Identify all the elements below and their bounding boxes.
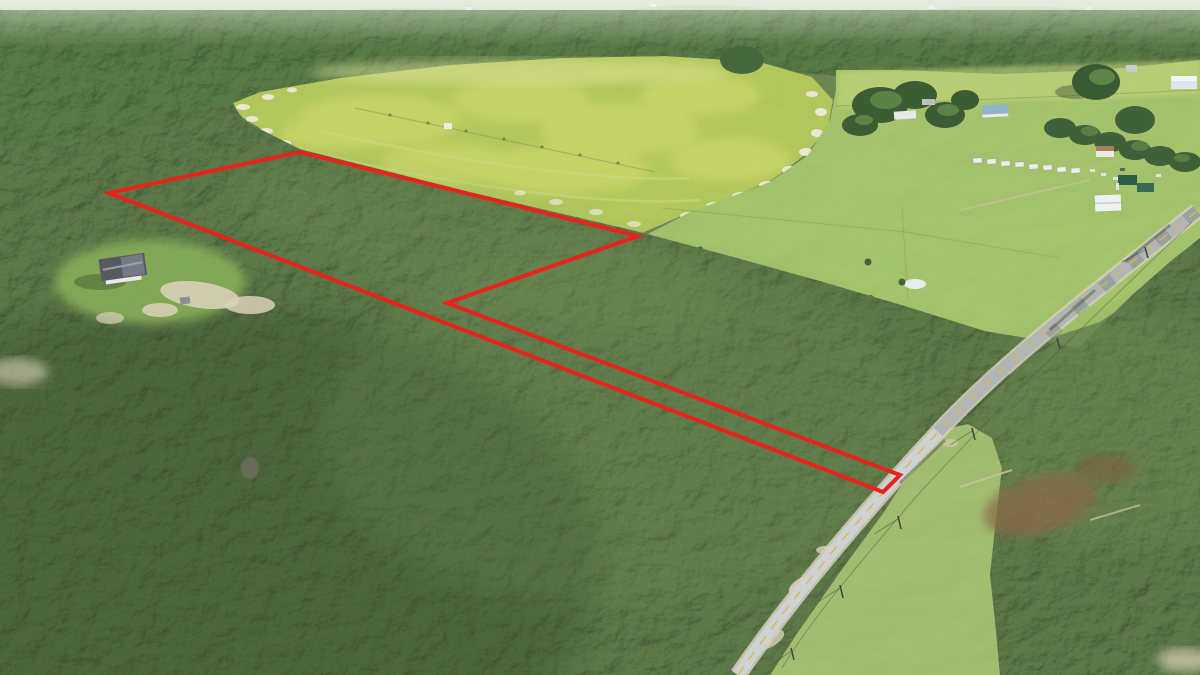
dead-tree-snag <box>241 457 259 479</box>
atmosphere-haze <box>0 0 1200 46</box>
small-outbuilding <box>922 99 935 105</box>
garden-shed <box>180 296 191 304</box>
small-shed <box>1126 65 1137 72</box>
aerial-photo-svg <box>0 0 1200 675</box>
warehouse <box>1171 76 1197 89</box>
aerial-photo <box>0 0 1200 675</box>
pasture-rv <box>904 279 926 289</box>
white-trailer <box>894 110 917 120</box>
farmhouse <box>1096 146 1114 157</box>
metal-barn <box>1095 195 1122 212</box>
pivot-pump-house <box>444 123 452 129</box>
field-edge-tree <box>720 46 764 74</box>
field-light-edge <box>310 59 730 85</box>
